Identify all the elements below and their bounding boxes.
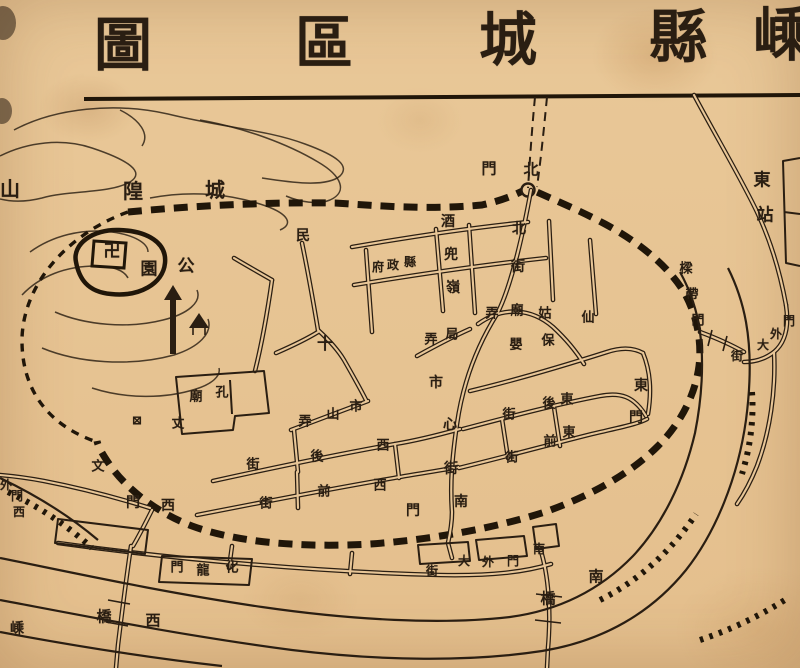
temple-enclosure <box>76 230 166 294</box>
east-station-building <box>783 158 800 266</box>
bridge-marks <box>106 330 727 626</box>
north-suburb-road <box>528 97 547 188</box>
confucius-temple-enclosure <box>176 371 269 434</box>
drawn-symbols <box>164 285 209 354</box>
map-linework <box>0 0 800 668</box>
antique-city-map: { "colors": { "paper": "#e8c697", "ink":… <box>0 0 800 668</box>
pavilion-symbol <box>189 313 209 335</box>
city-wall <box>97 188 700 545</box>
